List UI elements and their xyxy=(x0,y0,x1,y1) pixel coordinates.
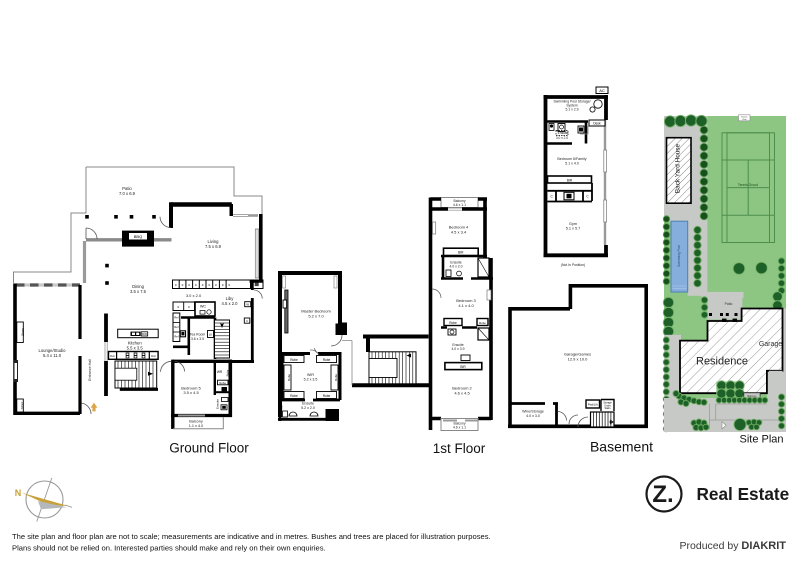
svg-text:Store: Store xyxy=(21,328,25,336)
svg-text:Gym: Gym xyxy=(569,222,577,226)
svg-text:W: W xyxy=(246,303,249,307)
svg-text:Ground Floor: Ground Floor xyxy=(169,441,249,456)
svg-text:c: c xyxy=(208,283,210,287)
svg-text:5.2 x 7.0: 5.2 x 7.0 xyxy=(308,313,324,318)
svg-text:BBQ: BBQ xyxy=(134,234,142,239)
svg-text:5.1 x 2.9: 5.1 x 2.9 xyxy=(565,108,578,112)
svg-text:WR: WR xyxy=(217,370,223,374)
svg-text:c: c xyxy=(202,283,204,287)
svg-text:4.6 x 1.1: 4.6 x 1.1 xyxy=(453,203,466,207)
svg-text:4.1 x 4.0: 4.1 x 4.0 xyxy=(458,303,474,308)
svg-text:Bedroom 6/Family: Bedroom 6/Family xyxy=(557,157,586,161)
svg-text:BIR: BIR xyxy=(460,365,466,369)
svg-text:C: C xyxy=(551,195,554,199)
svg-text:Ensuite: Ensuite xyxy=(302,402,314,406)
svg-text:4.6 x 4.5: 4.6 x 4.5 xyxy=(454,390,470,395)
svg-text:Ensuite: Ensuite xyxy=(558,131,569,135)
svg-text:4.0 x 2.0: 4.0 x 2.0 xyxy=(449,265,462,269)
svg-text:Robe: Robe xyxy=(479,321,486,325)
svg-text:Robe: Robe xyxy=(323,358,331,362)
svg-text:WC: WC xyxy=(280,405,284,409)
svg-text:7.5 x 6.9: 7.5 x 6.9 xyxy=(205,244,222,249)
svg-text:BIR: BIR xyxy=(458,251,464,255)
svg-text:Site Plan: Site Plan xyxy=(739,434,783,446)
svg-text:Store: Store xyxy=(21,401,25,409)
svg-text:C: C xyxy=(246,319,248,323)
svg-text:Desk: Desk xyxy=(593,122,601,126)
svg-text:7.0 x 6.9: 7.0 x 6.9 xyxy=(119,191,136,196)
svg-text:Basement: Basement xyxy=(590,439,653,455)
svg-text:C: C xyxy=(586,195,589,199)
svg-text:Residence: Residence xyxy=(696,356,748,368)
svg-text:Club: Club xyxy=(742,119,747,121)
svg-text:1st Floor: 1st Floor xyxy=(433,441,486,456)
svg-text:Robe: Robe xyxy=(290,394,298,398)
svg-text:5.1 x 4.0: 5.1 x 4.0 xyxy=(565,162,579,166)
svg-text:Robe: Robe xyxy=(226,369,230,376)
svg-text:Z.: Z. xyxy=(652,481,673,508)
svg-text:AC: AC xyxy=(599,88,605,93)
svg-text:Balcony: Balcony xyxy=(189,419,203,423)
svg-text:Robe: Robe xyxy=(219,381,226,385)
svg-text:5.5 x 3.5: 5.5 x 3.5 xyxy=(127,345,144,350)
svg-text:c: c xyxy=(195,283,197,287)
svg-text:3.0 x 2.0: 3.0 x 2.0 xyxy=(186,293,202,298)
svg-text:Ref: Ref xyxy=(174,335,178,339)
svg-text:Robe: Robe xyxy=(290,358,298,362)
svg-text:(Not In Position): (Not In Position) xyxy=(561,263,585,267)
svg-text:Plans should not be relied on.: Plans should not be relied on. Intereste… xyxy=(12,544,326,553)
svg-text:3.6 x 3.5: 3.6 x 3.5 xyxy=(191,337,204,341)
svg-text:Real Estate: Real Estate xyxy=(697,484,790,504)
svg-text:Robe: Robe xyxy=(287,374,291,382)
svg-text:3.5 x 4.5: 3.5 x 4.5 xyxy=(183,390,199,395)
svg-text:5.2 x 2.0: 5.2 x 2.0 xyxy=(301,406,315,410)
svg-text:Ensuite: Ensuite xyxy=(215,399,219,409)
svg-text:Robe: Robe xyxy=(323,394,331,398)
svg-text:Tennis Groud: Tennis Groud xyxy=(738,183,758,187)
svg-text:c: c xyxy=(182,283,184,287)
svg-text:1.1 x 4.0: 1.1 x 4.0 xyxy=(189,424,204,428)
svg-text:WC: WC xyxy=(200,305,206,309)
svg-text:Ovn: Ovn xyxy=(151,354,157,358)
svg-text:5.2 x 3.5: 5.2 x 3.5 xyxy=(304,378,318,382)
svg-text:c: c xyxy=(215,283,217,287)
svg-text:Ref: Ref xyxy=(174,316,178,320)
svg-text:Swimming Pool: Swimming Pool xyxy=(677,245,681,267)
svg-text:Ref: Ref xyxy=(174,325,178,329)
svg-text:Stairs: Stairs xyxy=(604,407,611,410)
svg-text:c: c xyxy=(175,283,177,287)
svg-text:c: c xyxy=(177,305,179,309)
svg-text:4.0 x 3.9: 4.0 x 3.9 xyxy=(451,347,464,351)
svg-text:Ovn: Ovn xyxy=(110,354,116,358)
svg-text:c: c xyxy=(222,283,224,287)
svg-text:Produced by DIAKRIT: Produced by DIAKRIT xyxy=(680,540,787,552)
svg-text:c: c xyxy=(188,283,190,287)
svg-text:The site plan and floor plan a: The site plan and floor plan are not to … xyxy=(12,532,491,541)
svg-text:4.6 x 1.1: 4.6 x 1.1 xyxy=(453,426,466,430)
svg-text:4.5 x 2.0: 4.5 x 2.0 xyxy=(221,301,238,306)
svg-text:LK: LK xyxy=(209,333,212,337)
svg-text:12.9 x 10.0: 12.9 x 10.0 xyxy=(568,356,589,361)
svg-text:DW: DW xyxy=(142,332,147,336)
svg-text:WIR: WIR xyxy=(307,373,314,377)
svg-text:Patio: Patio xyxy=(725,302,733,306)
svg-text:5.4 x 11.0: 5.4 x 11.0 xyxy=(43,353,62,358)
svg-text:BIR: BIR xyxy=(567,178,573,182)
svg-text:Back Yard House: Back Yard House xyxy=(675,143,682,193)
svg-text:N: N xyxy=(15,488,22,498)
svg-text:Robe: Robe xyxy=(449,321,457,325)
svg-text:Robe: Robe xyxy=(334,374,338,382)
svg-text:c: c xyxy=(188,305,190,309)
svg-text:c: c xyxy=(229,283,231,287)
svg-text:Wine/Storage: Wine/Storage xyxy=(522,410,544,414)
svg-text:4.5 x 3.4: 4.5 x 3.4 xyxy=(451,229,467,234)
svg-text:5.1 x 5.7: 5.1 x 5.7 xyxy=(566,227,581,231)
svg-text:Pwd/Lift: Pwd/Lift xyxy=(588,403,598,407)
svg-text:Garage: Garage xyxy=(759,341,782,348)
svg-text:Entrance Hall: Entrance Hall xyxy=(88,359,92,381)
svg-text:4.0 x 3.0: 4.0 x 3.0 xyxy=(526,414,540,418)
svg-text:3.0 x 2.0: 3.0 x 2.0 xyxy=(556,136,568,140)
svg-text:3.5 x 7.5: 3.5 x 7.5 xyxy=(130,289,147,294)
